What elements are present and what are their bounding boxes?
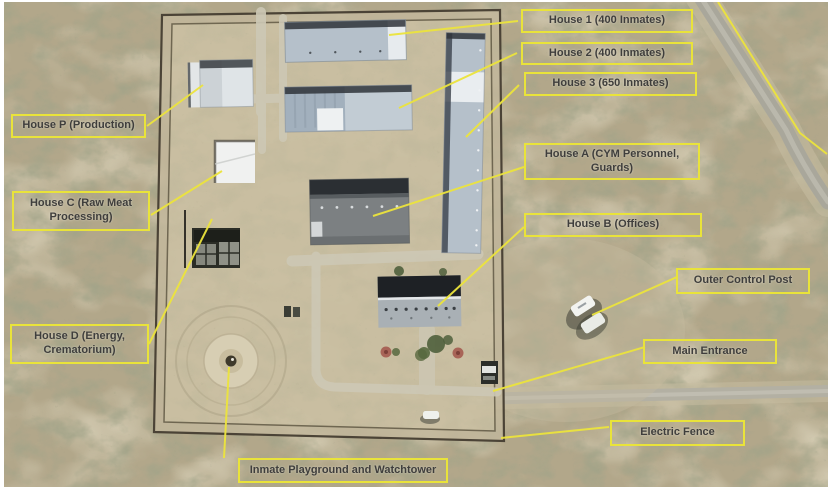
label-playground: Inmate Playground and Watchtower <box>238 458 448 483</box>
leader-house-p <box>147 85 203 126</box>
leader-house-2 <box>399 53 517 108</box>
label-house-b: House B (Offices) <box>524 213 702 237</box>
leader-house-3 <box>466 85 519 137</box>
label-electric-fence: Electric Fence <box>610 420 745 446</box>
label-house-p: House P (Production) <box>11 114 146 138</box>
leader-house-a <box>373 167 524 216</box>
label-house-c: House C (Raw Meat Processing) <box>12 191 150 231</box>
label-house-d: House D (Energy, Crematorium) <box>10 324 149 364</box>
label-main-entrance: Main Entrance <box>643 339 777 364</box>
leader-house-1 <box>389 21 518 35</box>
leader-electric-fence <box>501 427 609 438</box>
label-house-3: House 3 (650 Inmates) <box>524 72 697 96</box>
leader-playground <box>224 367 229 458</box>
leader-house-b <box>438 227 524 306</box>
label-house-a: House A (CYM Personnel, Guards) <box>524 143 700 180</box>
label-outer-control-post: Outer Control Post <box>676 268 810 294</box>
leader-road-offscreen <box>718 2 827 154</box>
leader-lines-layer <box>4 2 828 487</box>
leader-house-d <box>149 219 212 344</box>
satellite-photo <box>4 2 828 487</box>
leader-outer-control-post <box>592 277 677 315</box>
annotated-satellite-figure: House 1 (400 Inmates) House 2 (400 Inmat… <box>0 0 828 497</box>
leader-main-entrance <box>493 347 645 391</box>
label-house-1: House 1 (400 Inmates) <box>521 9 693 33</box>
label-house-2: House 2 (400 Inmates) <box>521 42 693 65</box>
leader-house-c <box>151 171 222 215</box>
